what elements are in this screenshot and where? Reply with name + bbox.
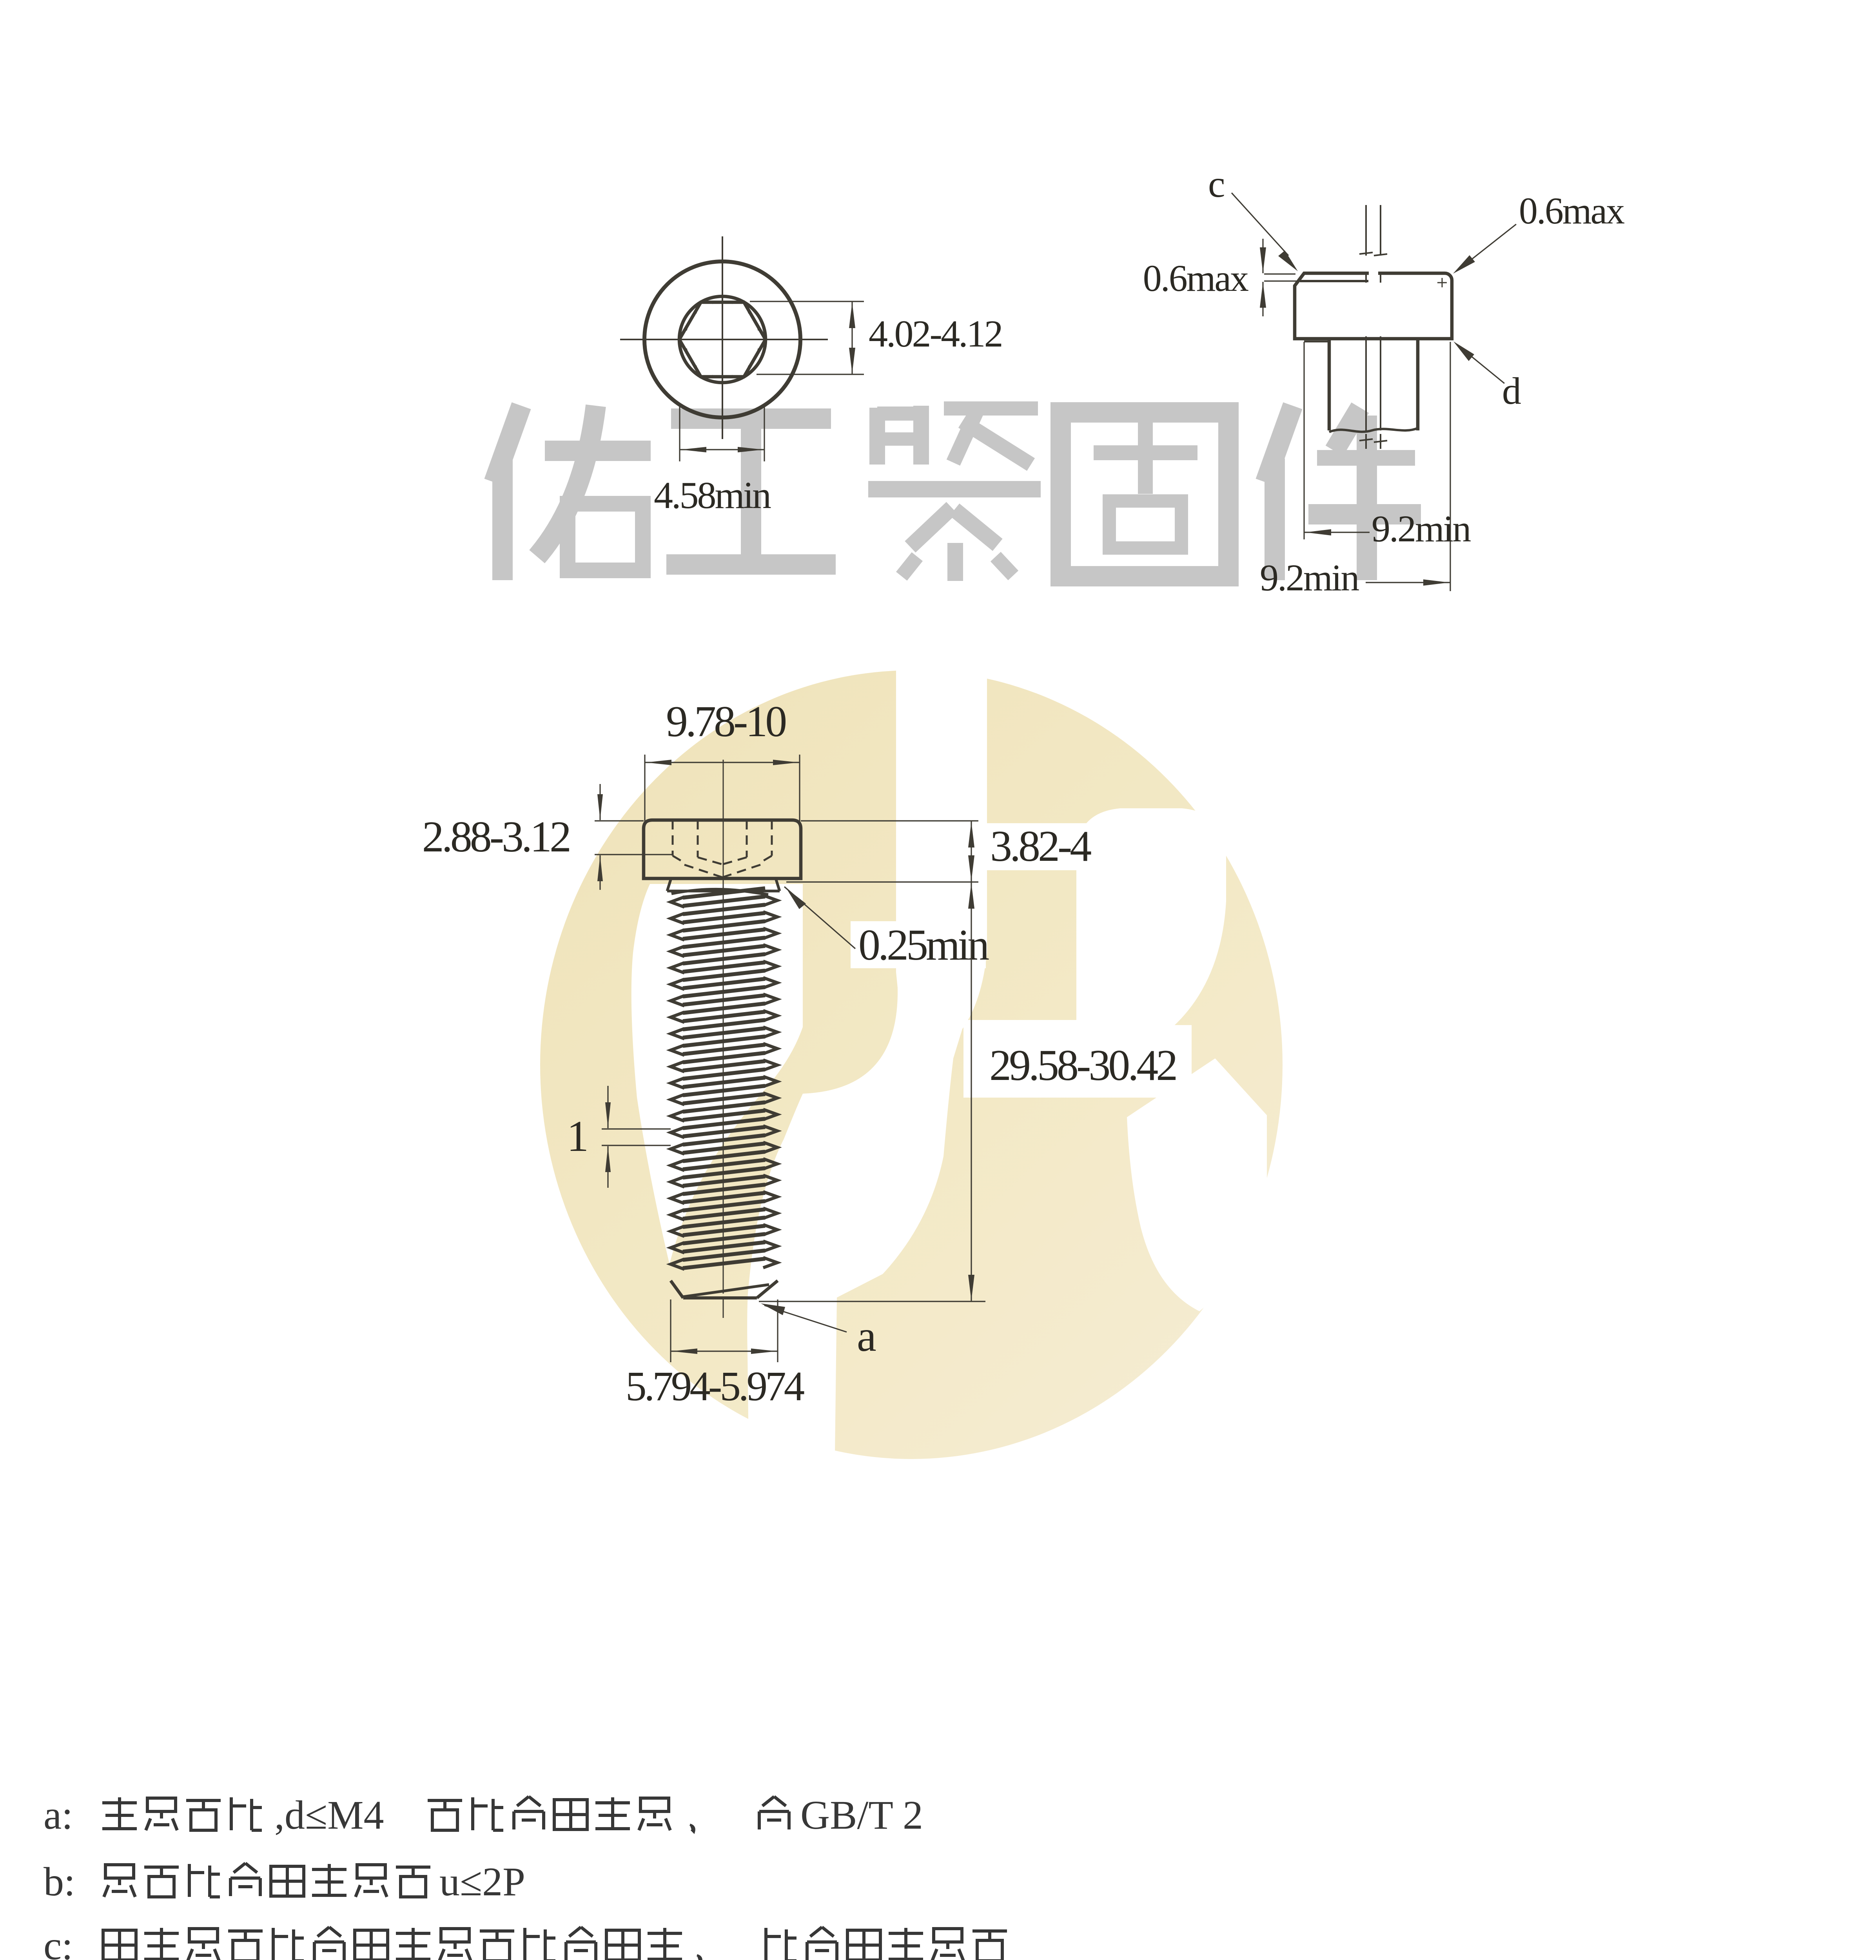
- svg-text:b:: b:: [44, 1859, 75, 1904]
- svg-text:5.794-5.974: 5.794-5.974: [626, 1363, 804, 1410]
- svg-text:c: c: [1208, 163, 1225, 205]
- svg-text:u≤2P: u≤2P: [439, 1859, 525, 1904]
- svg-text:0.25min: 0.25min: [858, 921, 989, 969]
- svg-text:4.58min: 4.58min: [654, 474, 771, 517]
- svg-text:3.82-4: 3.82-4: [990, 822, 1091, 871]
- svg-text:9.78-10: 9.78-10: [666, 697, 786, 746]
- svg-text:29.58-30.42: 29.58-30.42: [989, 1041, 1176, 1090]
- svg-text:a:: a:: [44, 1793, 73, 1838]
- svg-text:2.88-3.12: 2.88-3.12: [422, 813, 569, 861]
- svg-text:0.6max: 0.6max: [1519, 190, 1624, 232]
- svg-text:GB/T 2: GB/T 2: [800, 1793, 923, 1838]
- svg-text:1: 1: [567, 1112, 589, 1161]
- svg-text:,d≤M4: ,d≤M4: [274, 1793, 384, 1838]
- svg-text:9.2min: 9.2min: [1260, 557, 1359, 599]
- svg-text:9.2min: 9.2min: [1372, 508, 1471, 550]
- svg-text:c:: c:: [44, 1923, 73, 1960]
- svg-text:a: a: [857, 1312, 876, 1361]
- svg-text:d: d: [1502, 370, 1521, 412]
- svg-text:4.02-4.12: 4.02-4.12: [869, 313, 1002, 355]
- svg-text:0.6max: 0.6max: [1143, 257, 1248, 299]
